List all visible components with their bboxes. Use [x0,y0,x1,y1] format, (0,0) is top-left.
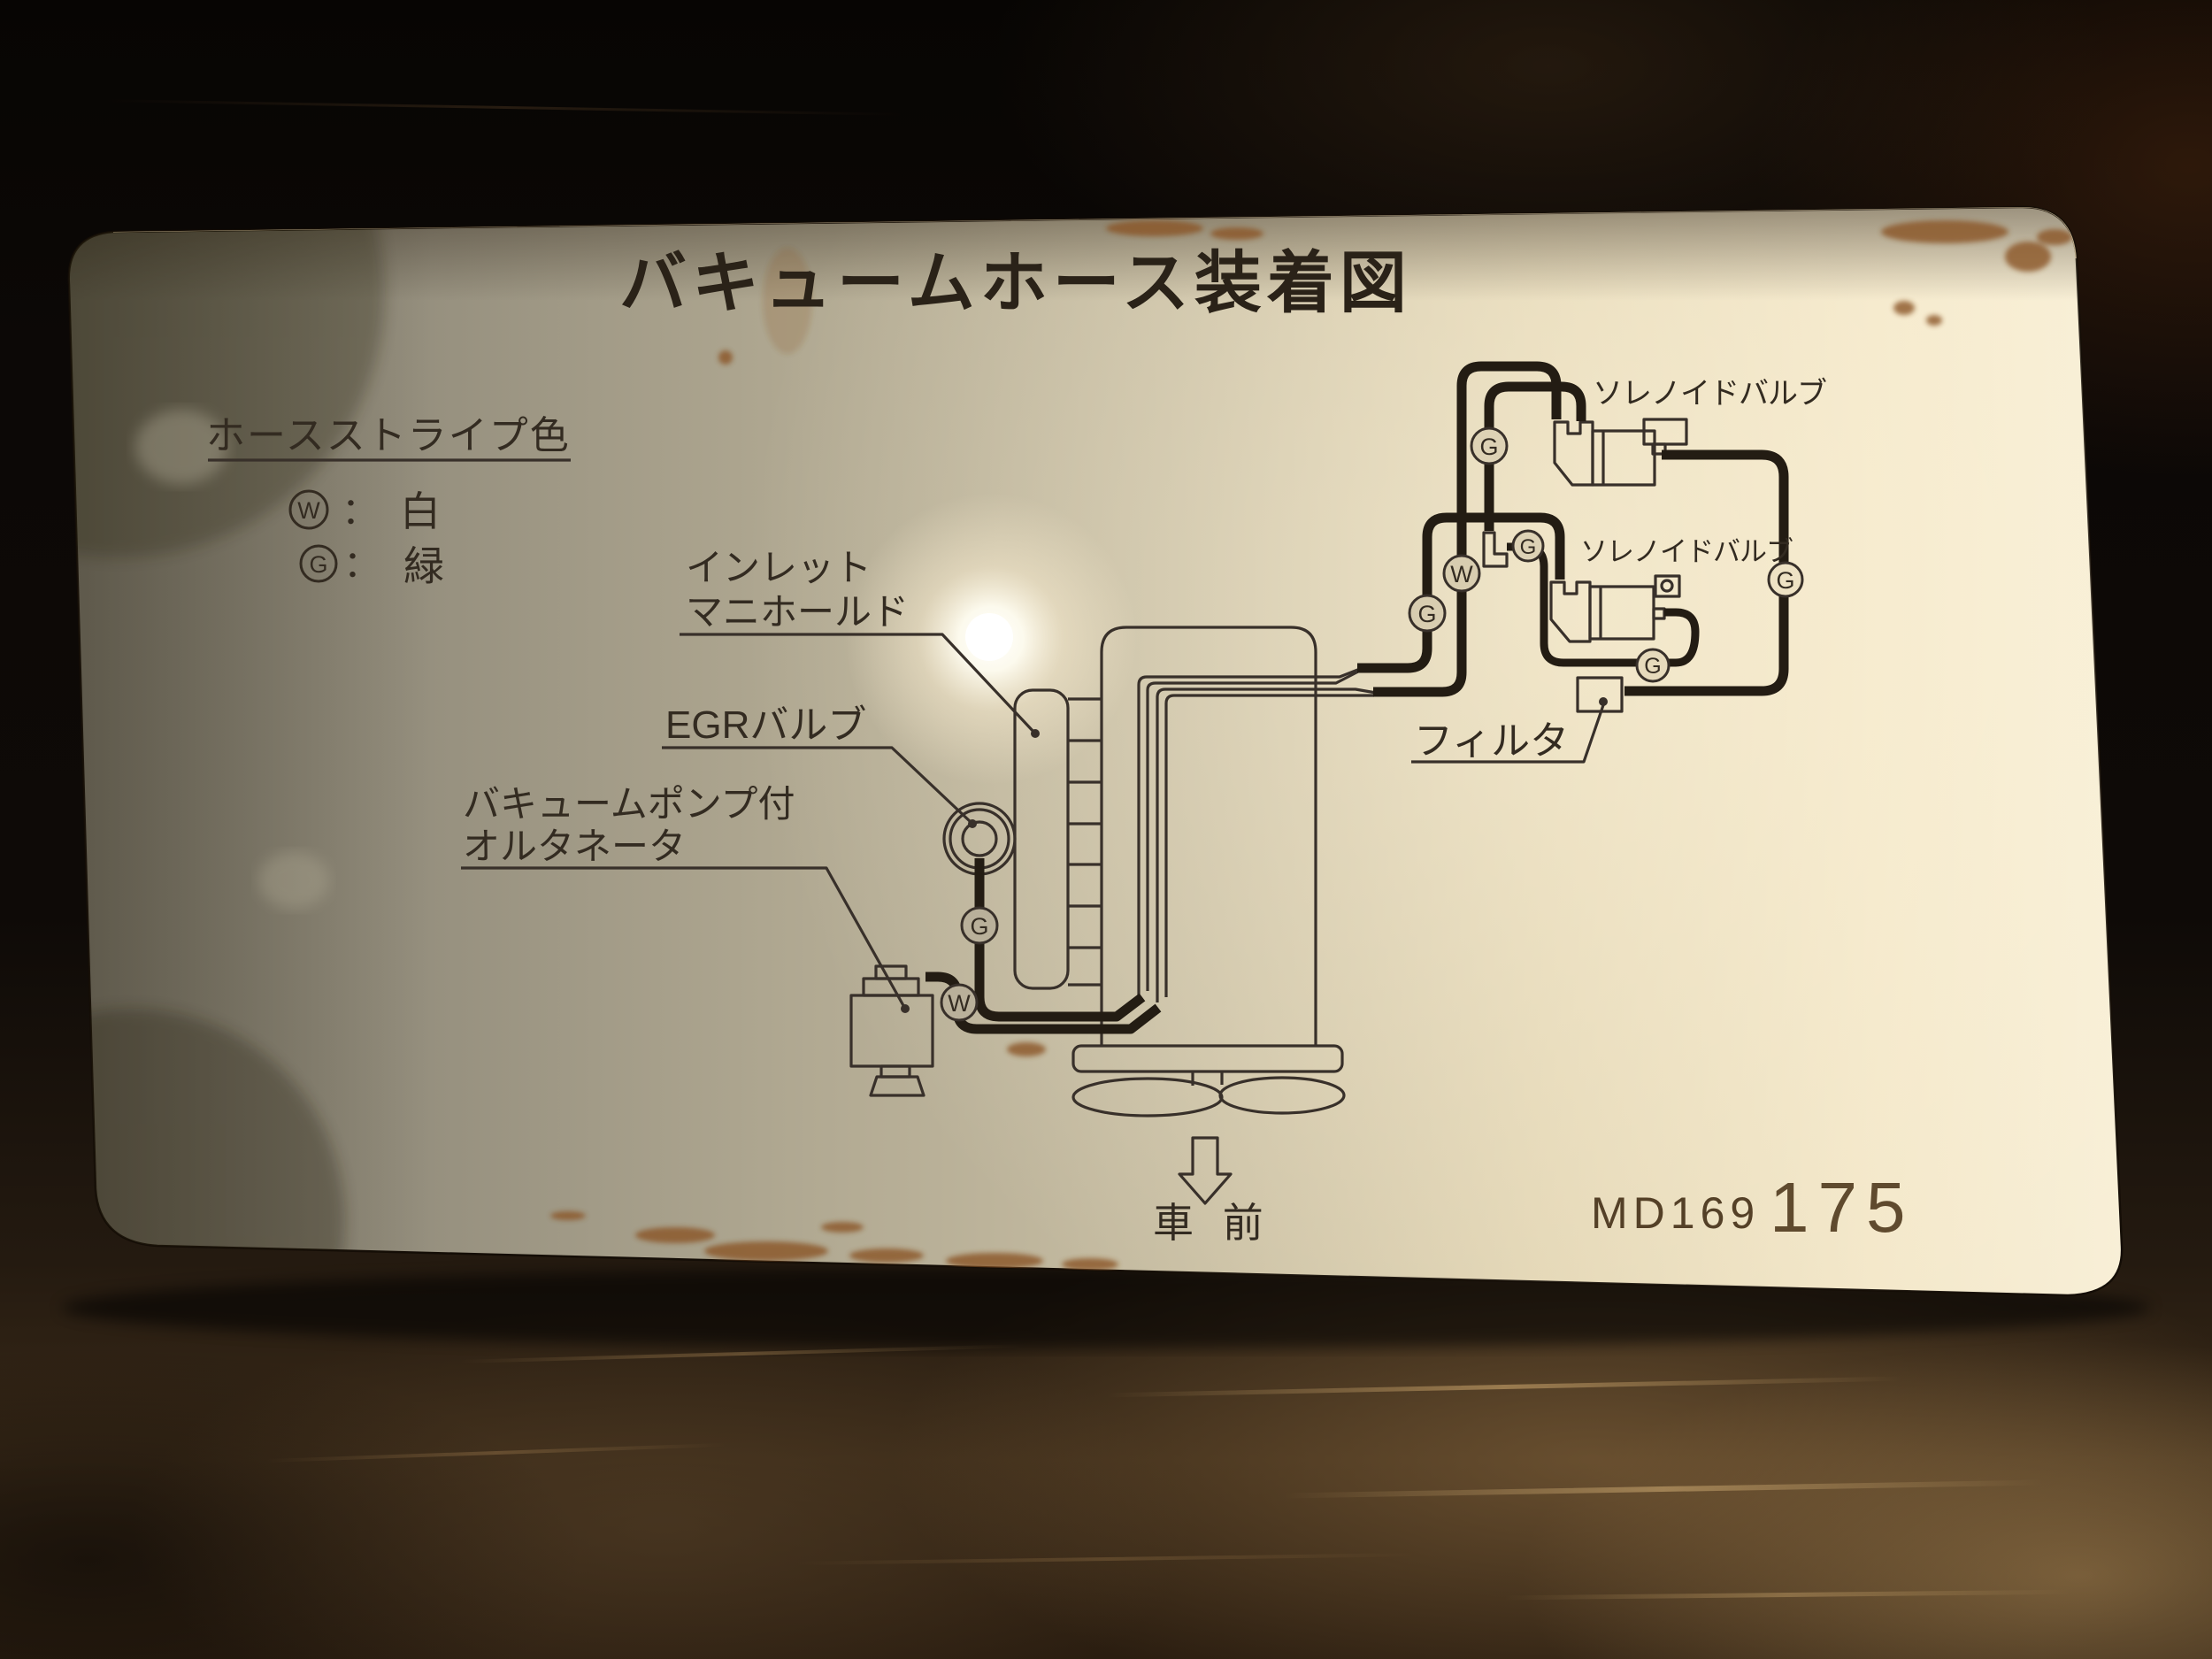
marker-letter: G [1479,434,1498,460]
marker-green: G [1471,428,1507,464]
label-solenoid-lower: ソレノイドバルブ [1580,536,1793,567]
legend-title: ホースストライプ色 [206,414,571,457]
marker-letter: W [1450,561,1473,588]
legend-symbol: W [297,497,320,524]
legend-separator: ： [343,543,380,585]
marker-letter: G [970,913,988,940]
marker-white: W [1444,556,1479,591]
label-alternator-2: オルタネータ [463,826,686,867]
marker-green: G [1769,563,1802,596]
dent-highlight [258,852,329,909]
marker-letter: W [948,990,971,1017]
label-vehicle-front: 車 前 [1153,1200,1272,1246]
flash-hotspot-core [965,613,1013,661]
label-inlet-manifold-1: インレット [686,547,872,588]
marker-letter: G [1520,535,1537,559]
photo-of-engine-bay: G W G W G G G [0,0,2212,1659]
marker-letter: G [1417,601,1436,627]
marker-green: G [1637,649,1669,681]
legend-color-name: 白 [400,488,441,534]
legend-symbol: G [309,551,327,578]
marker-green: G [1513,531,1543,561]
label-inlet-manifold-2: マニホールド [686,591,909,633]
label-filter: フィルタ [1414,719,1569,763]
marker-letter: G [1644,654,1661,679]
part-number-prefix: MD169 [1591,1188,1760,1238]
plate-photo-svg: G W G W G G G [0,0,2212,1659]
label-egr-valve: EGRバルブ [665,703,866,747]
label-alternator-1: バキュームポンプ付 [463,783,795,825]
plate-title: バキュームホース装着図 [619,246,1412,321]
marker-letter: G [1776,567,1794,594]
marker-green: G [962,908,997,943]
legend-color-name: 緑 [403,543,444,589]
part-number-suffix: 175 [1770,1168,1914,1247]
marker-white: W [941,985,977,1020]
marker-green: G [1409,595,1445,631]
legend-separator: ： [342,490,379,532]
label-solenoid-upper: ソレノイドバルブ [1593,377,1826,411]
